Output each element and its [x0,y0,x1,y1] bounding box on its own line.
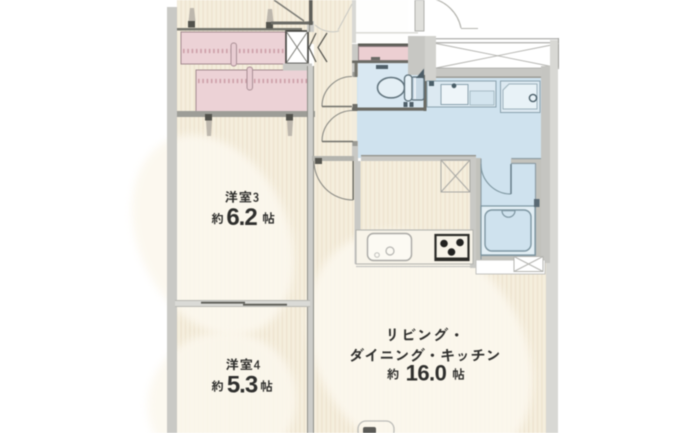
svg-text:6.2: 6.2 [226,204,257,231]
svg-text:16.0: 16.0 [406,361,447,386]
svg-text:5.3: 5.3 [227,372,258,399]
